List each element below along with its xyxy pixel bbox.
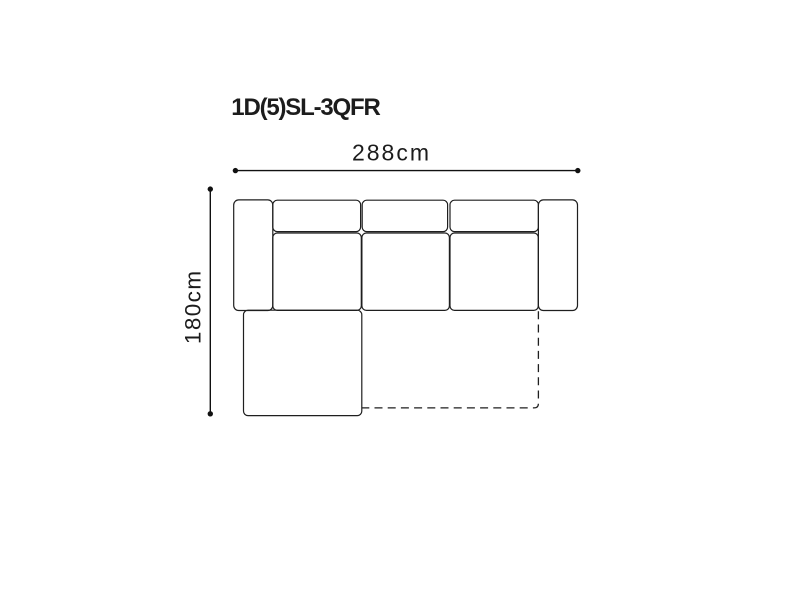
svg-text:180cm: 180cm <box>180 270 205 345</box>
svg-text:1D(5)SL-3QFR: 1D(5)SL-3QFR <box>231 94 380 121</box>
svg-text:288cm: 288cm <box>352 140 431 166</box>
